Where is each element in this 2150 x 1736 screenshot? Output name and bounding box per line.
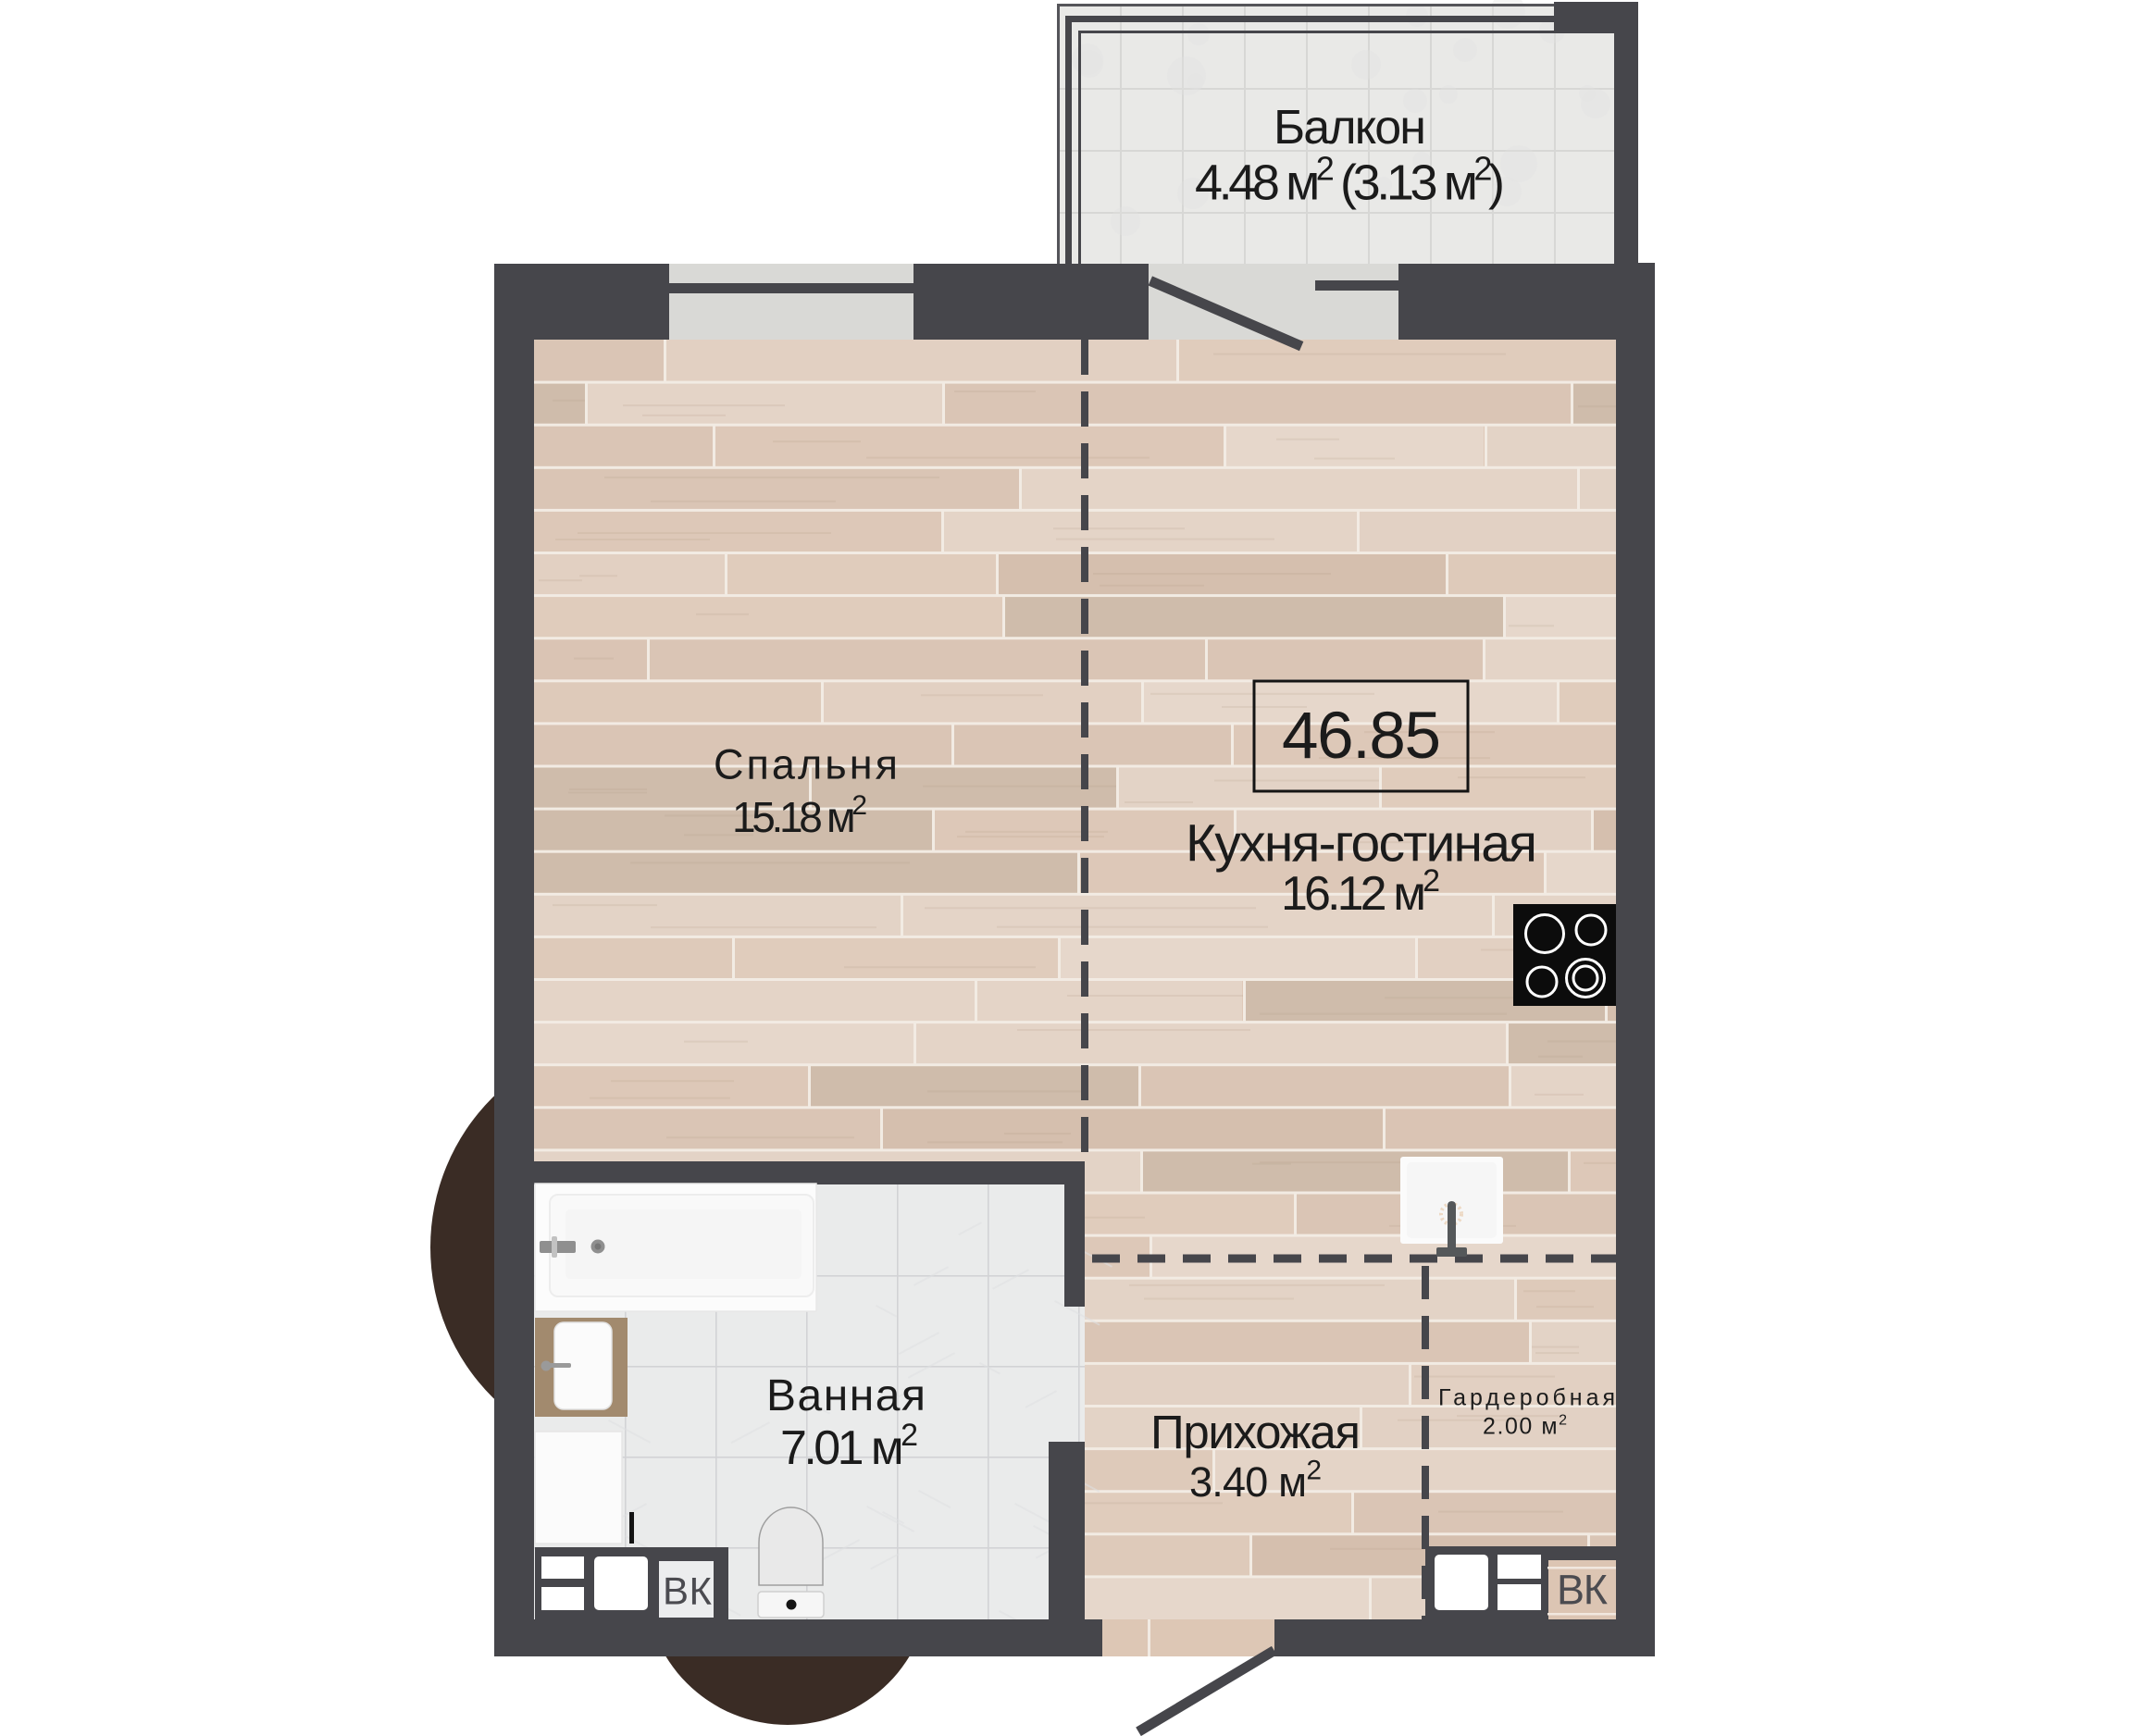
svg-text:46.85: 46.85 — [1282, 700, 1441, 773]
svg-text:Балкон: Балкон — [1274, 101, 1426, 155]
svg-text:ВК: ВК — [1557, 1567, 1608, 1614]
svg-text:Кухня-гостиная: Кухня-гостиная — [1186, 814, 1537, 874]
svg-text:7.01 м2: 7.01 м2 — [780, 1418, 918, 1475]
svg-text:Ванная: Ванная — [766, 1371, 926, 1420]
svg-text:Прихожая: Прихожая — [1150, 1406, 1361, 1458]
svg-text:Спальня: Спальня — [714, 741, 898, 788]
svg-text:ВК: ВК — [663, 1569, 713, 1613]
svg-text:2.00 м2: 2.00 м2 — [1483, 1412, 1567, 1439]
svg-text:15.18 м2: 15.18 м2 — [732, 790, 867, 841]
svg-text:16.12 м2: 16.12 м2 — [1281, 863, 1440, 921]
svg-text:3.40 м2: 3.40 м2 — [1189, 1455, 1322, 1506]
svg-text:4.48 м2 (3.13 м2): 4.48 м2 (3.13 м2) — [1195, 150, 1505, 211]
svg-text:Гардеробная: Гардеробная — [1438, 1385, 1615, 1411]
